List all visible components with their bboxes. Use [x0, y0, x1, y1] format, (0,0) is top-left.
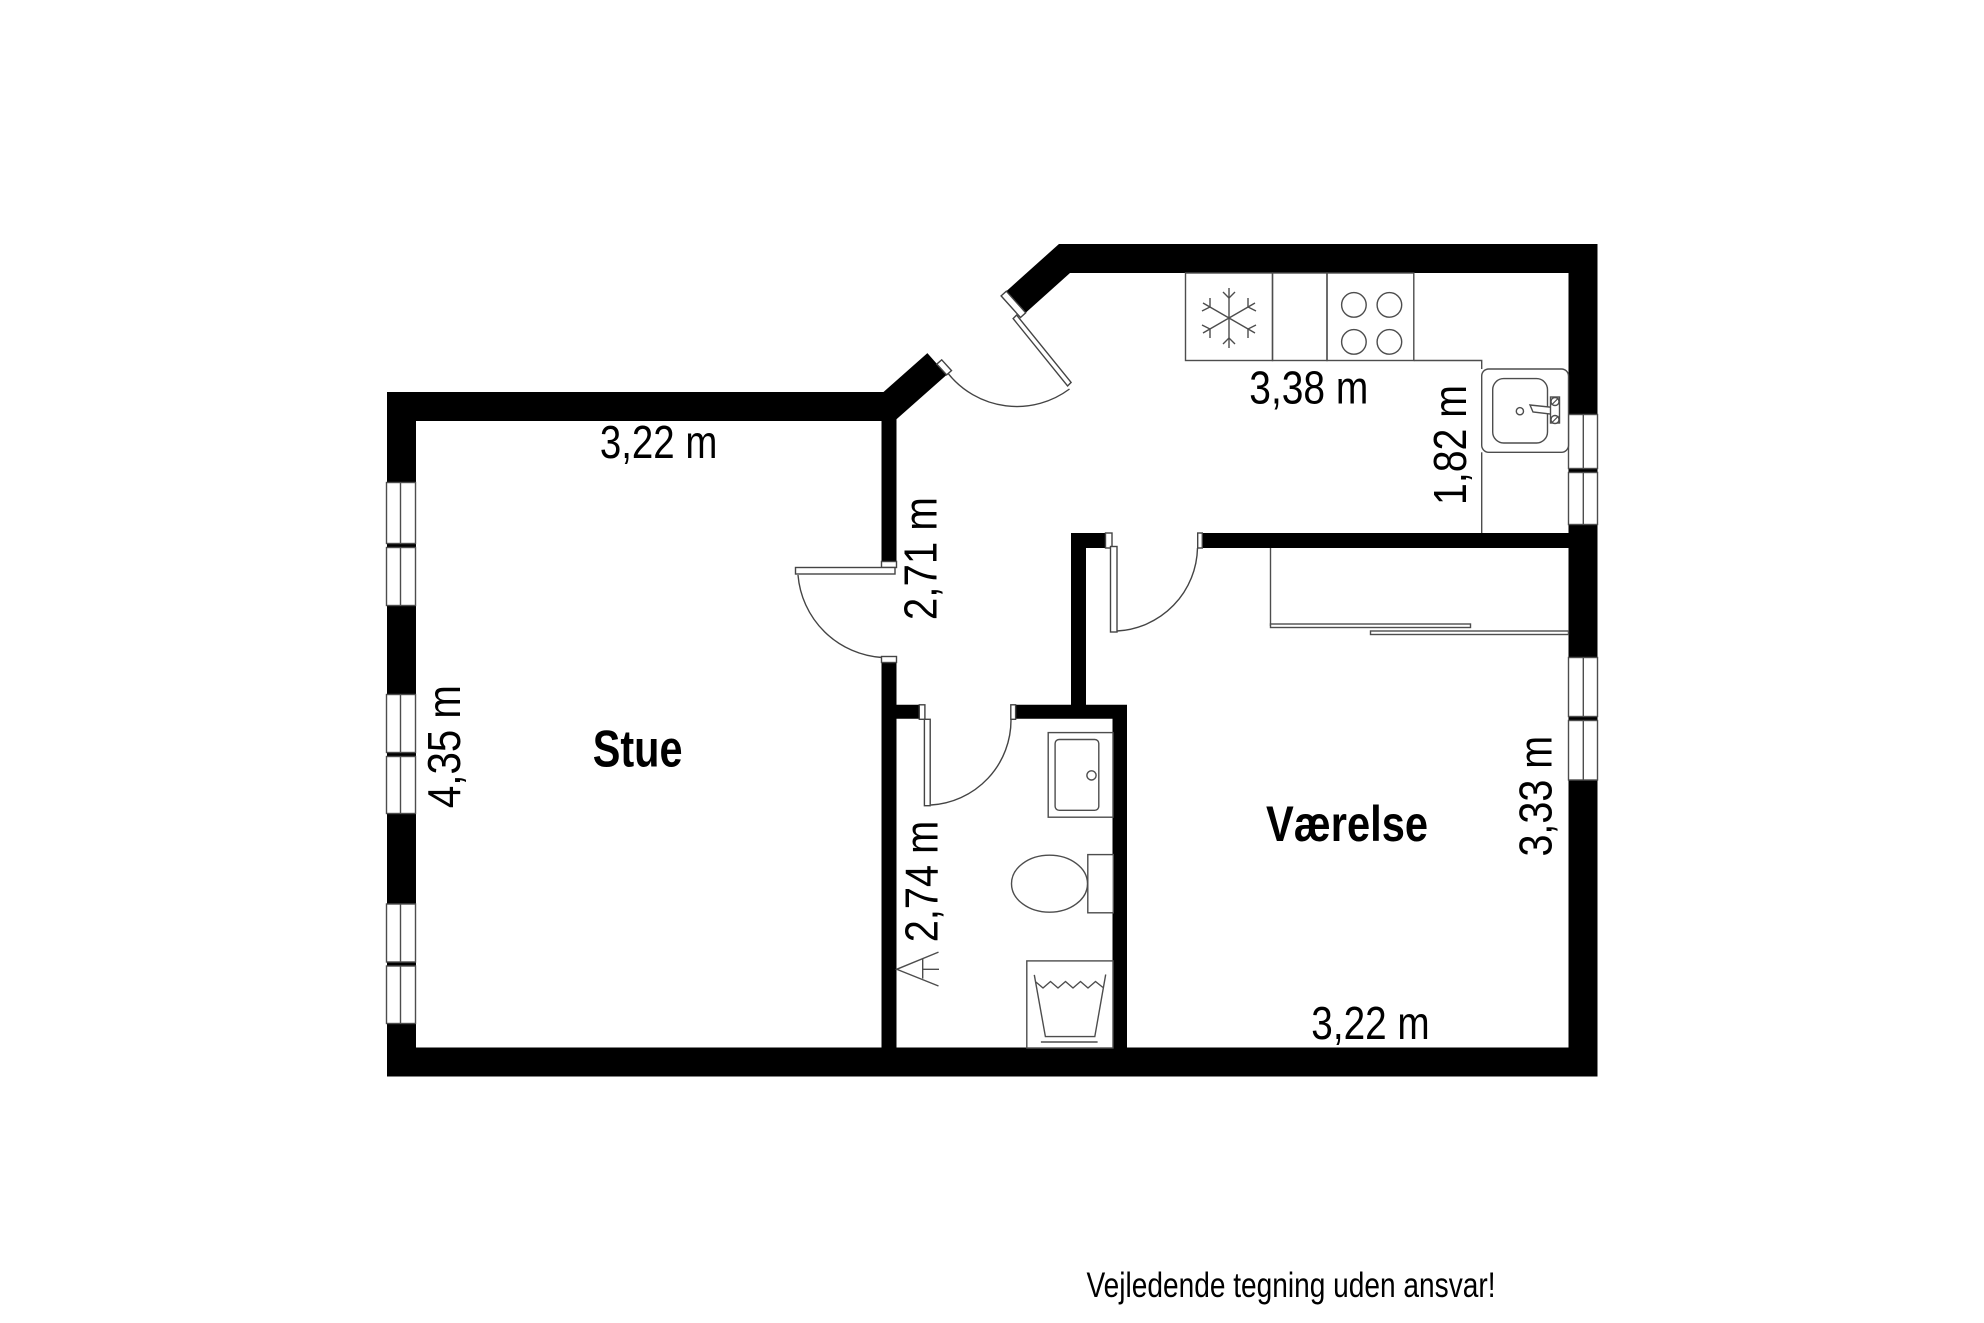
- svg-text:Vejledende tegning uden ansvar: Vejledende tegning uden ansvar!: [1087, 1266, 1496, 1305]
- svg-text:3,22 m: 3,22 m: [600, 416, 718, 468]
- svg-text:2,71 m: 2,71 m: [895, 497, 947, 620]
- svg-text:1,82 m: 1,82 m: [1424, 385, 1476, 505]
- svg-text:4,35 m: 4,35 m: [418, 685, 470, 808]
- svg-text:3,38 m: 3,38 m: [1249, 362, 1368, 414]
- svg-text:3,22 m: 3,22 m: [1311, 997, 1429, 1049]
- svg-text:3,33 m: 3,33 m: [1510, 736, 1562, 857]
- svg-text:Stue: Stue: [593, 720, 683, 778]
- svg-text:Værelse: Værelse: [1266, 796, 1428, 852]
- svg-text:2,74 m: 2,74 m: [896, 821, 948, 943]
